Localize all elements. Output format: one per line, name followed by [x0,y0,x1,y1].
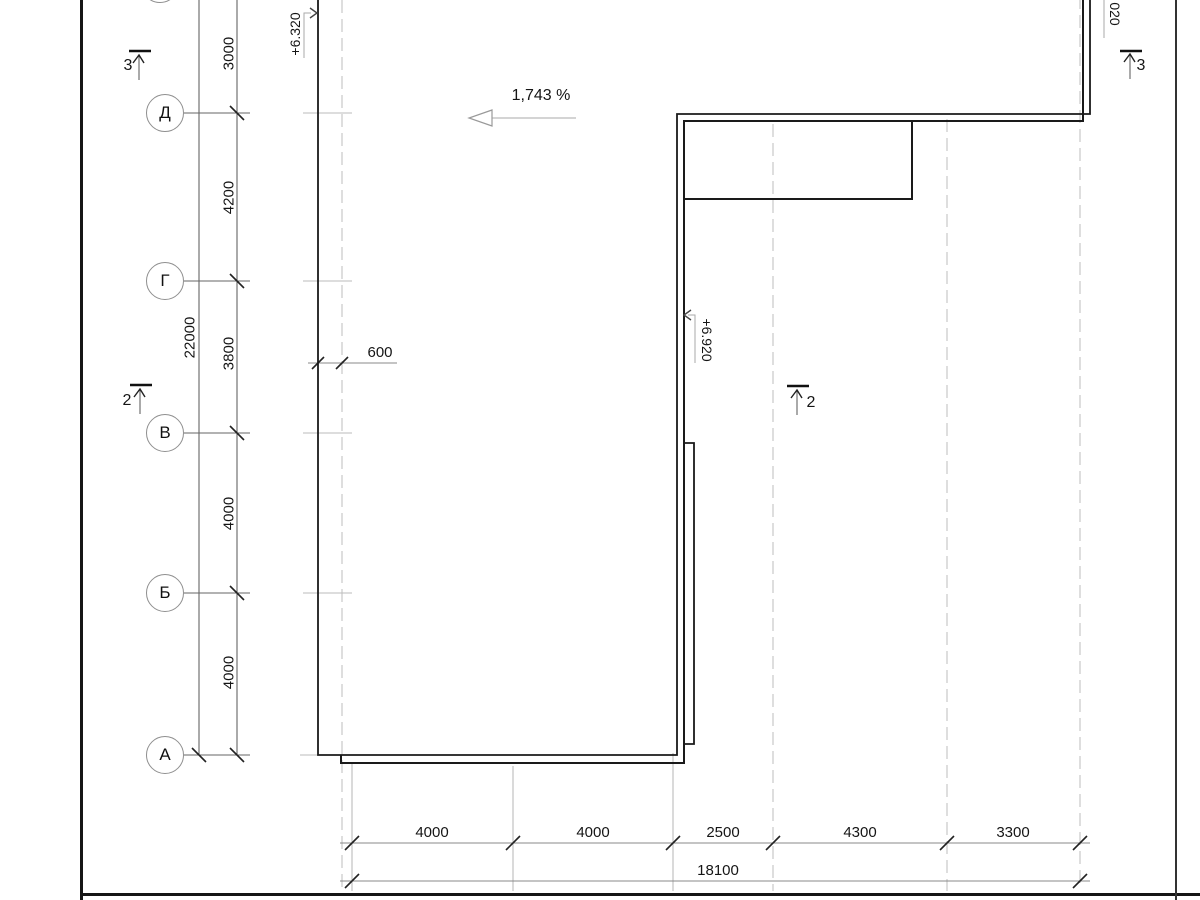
dimension-ticks-horizontal [312,357,1087,888]
axis-label-d: Д [159,103,171,123]
dim-left-seg-4200: 4200 [221,168,238,228]
axis-row-lines [184,113,352,755]
elevation-label-top-right: 020 [1107,0,1123,34]
section-markers [129,51,1142,415]
extension-lines [352,753,673,891]
elevation-label-left: +6.320 [287,4,303,64]
dim-bottom-seg-4300: 4300 [820,824,900,841]
dim-left-seg-3000: 3000 [221,24,238,84]
elevation-leaders [304,0,1104,363]
axis-circle-a: А [146,736,184,774]
section-digit-3-left: 3 [120,57,136,75]
canopy-rectangle [684,121,912,199]
dim-offset-600: 600 [350,344,410,361]
axis-circle-d: Д [146,94,184,132]
section-digit-3-right: 3 [1133,57,1149,75]
dim-left-seg-4000b: 4000 [221,643,238,703]
axis-circle-b: Б [146,574,184,612]
section-digit-2-right: 2 [803,394,819,412]
dim-bottom-seg-3300: 3300 [973,824,1053,841]
axis-circle-v: В [146,414,184,452]
axis-label-v: В [159,423,170,443]
grid-dashed-lines [342,0,1080,891]
dim-bottom-seg-2500: 2500 [683,824,763,841]
building-outer-contour [318,0,1090,755]
dim-total-left: 22000 [182,298,199,378]
roof-plan-drawing: Д Г В Б А 22000 3000 4200 3800 4000 4000… [0,0,1200,900]
dim-total-bottom: 18100 [678,862,758,879]
dim-left-seg-4000a: 4000 [221,484,238,544]
slope-arrow [469,110,576,126]
slope-label: 1,743 % [481,87,601,105]
section-digit-2-left: 2 [119,392,135,410]
wall-strip [684,443,694,744]
dim-bottom-seg-4000a: 4000 [392,824,472,841]
elevation-label-inner: +6.920 [699,310,715,370]
axis-circle-g: Г [146,262,184,300]
elevation-arrow-left [310,8,317,18]
dim-bottom-seg-4000b: 4000 [553,824,633,841]
axis-label-a: А [159,745,170,765]
building-outline [318,0,1090,763]
bottom-dimension-lines [308,363,1090,881]
axis-label-g: Г [160,271,169,291]
dim-left-seg-3800: 3800 [221,324,238,384]
axis-label-b: Б [159,583,170,603]
